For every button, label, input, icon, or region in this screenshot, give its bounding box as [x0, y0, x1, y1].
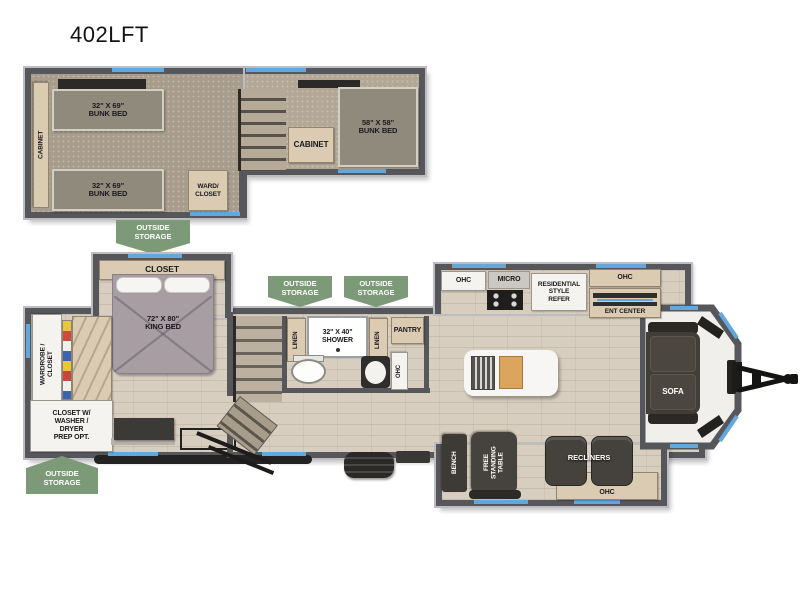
loft-cabinet-mid: CABINET	[288, 127, 334, 163]
loft-stairs-rail	[238, 89, 241, 171]
ent-center-shelf	[593, 293, 657, 298]
stairs-rail	[233, 316, 236, 402]
free-standing-table: FREE STANDING TABLE	[471, 432, 517, 494]
ent-center-accent	[597, 299, 653, 301]
kitchen-ohc-left: OHC	[441, 271, 486, 291]
recliners-label: RECLINERS	[544, 452, 634, 464]
cooktop	[487, 290, 523, 310]
kitchen-ohc-right: OHC	[589, 269, 661, 287]
ent-center-label: ENT CENTER	[589, 306, 661, 318]
sofa-cushion	[650, 336, 696, 372]
bed-pillow	[164, 277, 210, 293]
entry-platform	[396, 451, 430, 463]
pantry: PANTRY	[391, 317, 424, 344]
outside-storage-banner: OUTSIDE STORAGE	[26, 456, 98, 494]
floorplan-canvas: 402LFT CABINET 32" X 69" BUNK BED 32" X …	[0, 0, 800, 600]
outside-storage-banner: OUTSIDE STORAGE	[344, 276, 408, 307]
wardrobe-closet: WARDROBE / CLOSET	[32, 314, 62, 414]
washer-dryer-closet: CLOSET W/ WASHER / DRYER PREP OPT.	[30, 400, 113, 452]
bath-ohc: OHC	[391, 352, 408, 390]
bath-sink	[365, 361, 386, 384]
table-bench-seat	[469, 490, 521, 499]
outside-storage-banner: OUTSIDE STORAGE	[268, 276, 332, 307]
window-accent	[596, 264, 646, 268]
kitchen-microwave: MICRO	[488, 271, 530, 289]
king-bed-label: 72" X 80" KING BED	[114, 310, 212, 336]
bath-wall	[424, 316, 429, 393]
loft-window-accent	[112, 68, 164, 72]
model-title: 402LFT	[70, 22, 149, 48]
loft-step-wall	[239, 169, 247, 218]
loft-bunk-bed-right: 58" X 58" BUNK BED	[338, 87, 418, 167]
loft-wardrobe-closet: WARD/ CLOSET	[188, 170, 228, 211]
loft-bunk-headboard	[58, 79, 146, 89]
main-stairs	[236, 316, 282, 402]
refrigerator: RESIDENTIAL STYLE REFER	[531, 273, 587, 311]
bed-pillow	[116, 277, 162, 293]
window-accent	[128, 254, 182, 258]
toilet	[291, 359, 326, 384]
bench: BENCH	[442, 434, 467, 492]
loft-window-accent	[246, 68, 306, 72]
loft-bunk-bed-top: 32" X 69" BUNK BED	[52, 89, 164, 131]
entry-steps	[344, 452, 394, 478]
dresser	[114, 418, 174, 440]
hitch	[732, 362, 798, 392]
cutting-board	[499, 356, 523, 389]
window-accent	[26, 324, 30, 358]
loft-window-accent	[338, 169, 386, 173]
slide-rail-bar	[94, 455, 312, 464]
island-sink	[471, 356, 495, 390]
loft-window-accent	[190, 212, 240, 216]
window-accent	[262, 452, 306, 456]
hanging-clothes	[62, 320, 72, 400]
window-accent	[452, 264, 506, 268]
loft-cabinet: CABINET	[33, 82, 49, 208]
loft-stairs	[241, 89, 286, 171]
window-accent	[474, 500, 528, 504]
shower-drain	[336, 348, 340, 352]
window-accent	[108, 452, 158, 456]
outside-storage-banner: OUTSIDE STORAGE	[116, 220, 190, 254]
window-accent	[574, 500, 620, 504]
sofa-label: SOFA	[650, 382, 696, 402]
loft-bunk-bed-bottom: 32" X 69" BUNK BED	[52, 169, 164, 211]
